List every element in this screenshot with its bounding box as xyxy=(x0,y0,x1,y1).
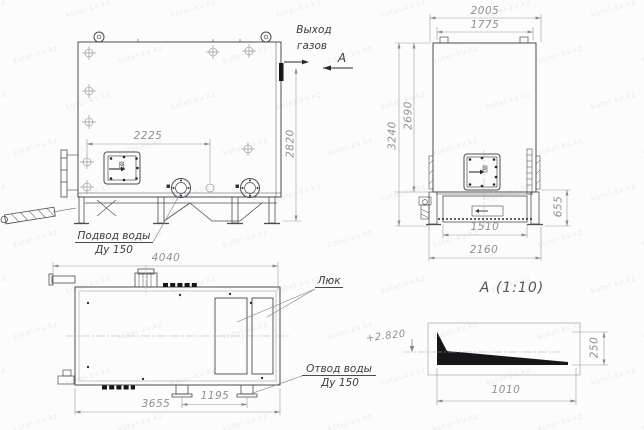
label-gas-outlet-line1: Выход xyxy=(291,25,337,36)
label-gas-outlet-line2: газов xyxy=(291,41,333,52)
drawing-canvas: kotel-kv.kzkotel-kv.kzkotel-kv.kzkotel-k… xyxy=(0,0,644,430)
label-water-supply-line1: Подвод воды xyxy=(75,231,153,243)
dim-detail-length: 1010 xyxy=(486,385,526,396)
side-view-left-equipment xyxy=(0,150,116,225)
dim-front-total-height: 3240 xyxy=(387,116,398,156)
dim-plan-body: 3655 xyxy=(136,399,176,410)
front-view-door xyxy=(464,154,500,190)
gas-outlet-port xyxy=(279,60,309,81)
dim-front-base-outer: 2160 xyxy=(464,245,504,256)
side-view-body xyxy=(78,32,281,197)
plan-view-dims xyxy=(53,262,315,415)
dim-front-body-height: 2690 xyxy=(403,96,414,136)
section-arrow-a xyxy=(323,65,353,70)
label-hatch: Люк xyxy=(315,276,343,288)
dim-side-width: 2225 xyxy=(128,131,168,142)
dim-plan-overall: 4040 xyxy=(146,253,186,264)
label-water-supply-line2: Ду 150 xyxy=(85,245,143,256)
label-section-a: А xyxy=(334,52,350,65)
side-view-base xyxy=(74,197,280,224)
dim-front-base-inner: 1510 xyxy=(465,222,505,233)
dim-front-outer-width: 2005 xyxy=(465,6,505,17)
side-view-target-markers xyxy=(80,44,256,194)
label-water-drain-line2: Ду 150 xyxy=(312,378,368,389)
label-detail-title: А (1:10) xyxy=(472,281,552,296)
dim-front-inner-width: 1775 xyxy=(465,20,505,31)
dim-front-base-height: 655 xyxy=(553,187,564,227)
dim-side-height: 2820 xyxy=(285,124,296,164)
label-water-drain-line1: Отвод воды xyxy=(302,364,376,376)
front-view-body xyxy=(429,37,540,194)
side-view-door xyxy=(104,152,140,184)
water-supply-flanges xyxy=(167,179,260,198)
plan-view-body xyxy=(49,265,289,397)
dim-plan-drain-spacing: 1195 xyxy=(195,391,235,402)
dim-detail-height: 250 xyxy=(589,328,600,368)
